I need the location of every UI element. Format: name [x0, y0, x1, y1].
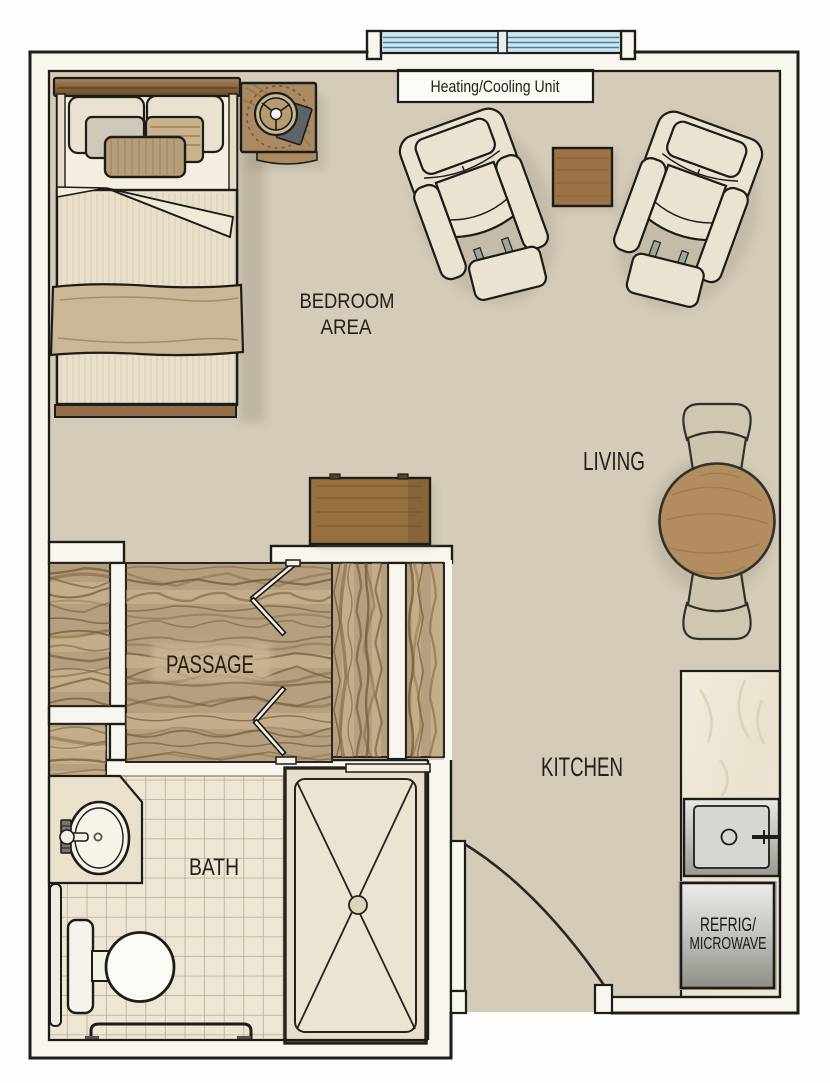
svg-text:KITCHEN: KITCHEN — [541, 752, 623, 782]
svg-text:Heating/Cooling Unit: Heating/Cooling Unit — [431, 78, 560, 96]
svg-text:BATH: BATH — [189, 854, 239, 881]
svg-text:BEDROOM: BEDROOM — [300, 290, 395, 313]
svg-text:MICROWAVE: MICROWAVE — [690, 933, 767, 953]
svg-text:AREA: AREA — [321, 316, 372, 339]
svg-text:LIVING: LIVING — [583, 448, 645, 476]
svg-text:PASSAGE: PASSAGE — [166, 651, 254, 679]
